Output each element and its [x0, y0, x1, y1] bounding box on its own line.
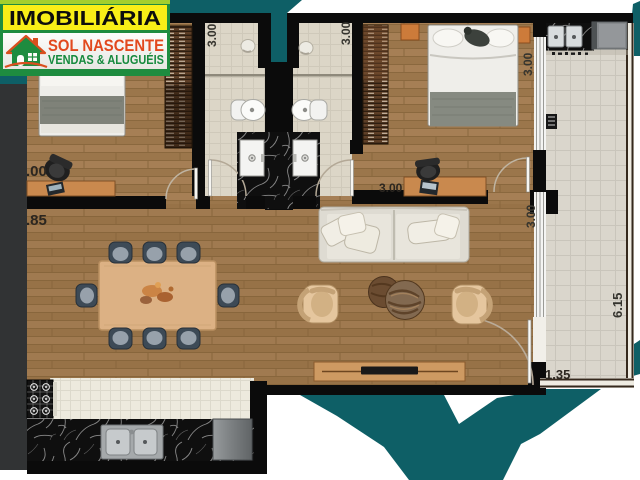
svg-text:3.00: 3.00	[521, 52, 535, 76]
svg-text:1.35: 1.35	[545, 367, 570, 382]
svg-text:3.00: 3.00	[524, 204, 538, 228]
svg-text:6.15: 6.15	[610, 293, 625, 318]
svg-text:3.00: 3.00	[205, 23, 219, 47]
svg-text:VENDAS & ALUGUÉIS: VENDAS & ALUGUÉIS	[48, 52, 164, 67]
svg-text:.85: .85	[26, 212, 47, 229]
svg-text:3.00: 3.00	[339, 21, 353, 45]
svg-text:.00: .00	[26, 163, 47, 180]
svg-text:3.00: 3.00	[379, 181, 403, 195]
svg-text:IMOBILIÁRIA: IMOBILIÁRIA	[9, 7, 161, 30]
